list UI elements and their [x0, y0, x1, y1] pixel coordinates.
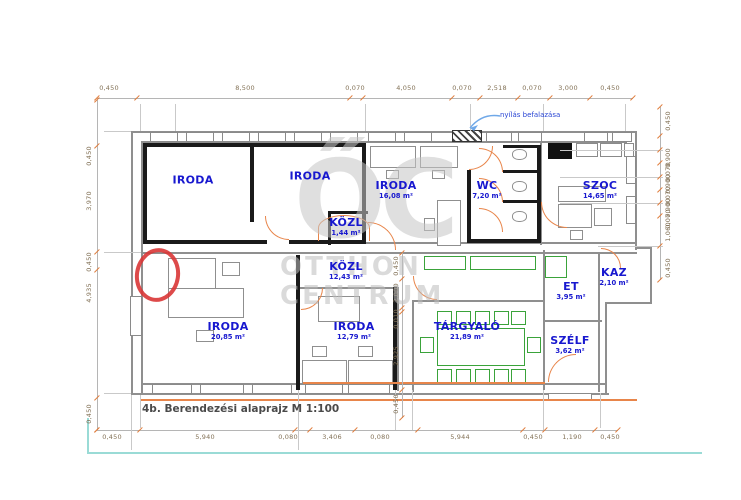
room-area: 16,08 m² [375, 192, 416, 200]
furniture-desk [432, 170, 445, 179]
wall-segment [143, 252, 637, 254]
dimension-text: 3,970 [85, 191, 93, 211]
window-segment [222, 132, 250, 142]
room-label: WC7,20 m² [472, 180, 501, 200]
meeting-chair [511, 311, 526, 325]
dimension-text: 3,000 [558, 84, 578, 92]
window-segment [330, 132, 358, 142]
room-area: 12,43 m² [329, 273, 363, 281]
room-name: IRODA [207, 321, 248, 334]
room-name: IRODA [333, 321, 374, 334]
extension-line [104, 131, 131, 132]
kitchen-unit [548, 143, 572, 159]
wall-segment [467, 170, 471, 242]
toilet-fixture [512, 181, 527, 192]
furniture-desk [437, 200, 461, 246]
door-arc [548, 354, 576, 382]
room-label: KÖZL12,43 m² [329, 261, 363, 281]
door-arc [479, 208, 503, 232]
room-name: KÖZL [329, 217, 363, 230]
window-segment [404, 132, 432, 142]
room-label: IRODA12,79 m² [333, 321, 374, 341]
extension-line [365, 104, 366, 131]
extension-line [600, 393, 601, 428]
wall-segment [296, 255, 300, 390]
toilet-fixture [512, 149, 527, 160]
furniture-desk [594, 208, 612, 226]
dimension-text: 0,450 [600, 433, 620, 441]
door-arc [368, 222, 396, 250]
extension-line [598, 246, 663, 247]
floor-plan-canvas: ŐC OTTHON CENTRUM IRODAIRODAIRODA16,08 m… [0, 0, 741, 500]
extension-line [560, 150, 663, 151]
extension-line [560, 203, 663, 204]
wall-segment [467, 239, 541, 243]
window-segment [200, 384, 244, 394]
room-area: 14,65 m² [583, 192, 618, 200]
window-segment [518, 132, 542, 142]
furniture-green [527, 337, 541, 353]
door-arc [479, 148, 503, 172]
window-segment [584, 132, 608, 142]
dimension-text: 0,080 [370, 433, 390, 441]
furniture-desk [370, 146, 416, 168]
wall-segment [537, 145, 541, 240]
masonry-note-arrow-icon [458, 112, 502, 138]
extension-line [104, 393, 131, 394]
room-area: 1,44 m² [329, 229, 363, 237]
dimension-text: 0,450 [523, 433, 543, 441]
dimension-text: 0,450 [664, 258, 672, 278]
room-name: WC [472, 180, 501, 193]
extension-line [543, 390, 544, 430]
room-label: ET3,95 m² [556, 281, 585, 301]
window-segment [368, 132, 396, 142]
window-segment [294, 132, 322, 142]
watermark-line1: OTTHON [280, 253, 500, 282]
room-label: IRODA [289, 171, 330, 184]
door-arc [541, 202, 567, 228]
furniture-desk [222, 262, 240, 276]
extension-line [140, 395, 141, 428]
wall-segment [328, 211, 368, 214]
furniture-green [420, 337, 434, 353]
dimension-text: 5,944 [450, 433, 470, 441]
room-label: KÖZL1,44 m² [329, 217, 363, 237]
dimension-text: 8,500 [235, 84, 255, 92]
wall-segment [503, 145, 539, 148]
wall-segment [250, 143, 254, 222]
dimension-text: 1,060 [664, 222, 672, 242]
extension-line [175, 104, 176, 131]
furniture-green [545, 256, 567, 278]
dimension-text: 0,070 [452, 84, 472, 92]
furniture-desk [358, 346, 373, 357]
room-label: SZÉLF3,62 m² [550, 335, 589, 355]
room-area: 20,85 m² [207, 333, 248, 341]
extension-line [140, 104, 141, 131]
dimension-text: 0,080 [278, 433, 298, 441]
construction-line [303, 382, 545, 384]
room-name: SZOC [583, 180, 618, 193]
furniture-desk [420, 146, 458, 168]
room-label: IRODA16,08 m² [375, 180, 416, 200]
room-label: TÁRGYALÓ21,89 m² [434, 321, 500, 341]
wall-segment [412, 300, 545, 302]
window-segment [258, 132, 286, 142]
furniture-desk [312, 346, 327, 357]
dimension-line [97, 430, 618, 431]
window-segment [626, 196, 636, 224]
dimension-text: 0,070 [345, 84, 365, 92]
furniture-green [424, 256, 466, 270]
dimension-text: 0,450 [664, 111, 672, 131]
dimension-text: 0,450 [392, 394, 400, 414]
wall-segment [605, 302, 652, 304]
wall-segment [143, 240, 267, 244]
wall-segment [605, 302, 607, 395]
furniture-desk [424, 218, 435, 231]
dimension-text: 0,450 [85, 252, 93, 272]
dimension-text: 0,450 [600, 84, 620, 92]
dimension-line [97, 98, 633, 99]
furniture-desk [348, 360, 393, 384]
room-label: IRODA20,85 m² [207, 321, 248, 341]
window-segment [152, 384, 192, 394]
wall-segment [503, 200, 539, 203]
window-segment [186, 132, 214, 142]
dimension-text: 1,190 [562, 433, 582, 441]
extension-line [625, 104, 626, 131]
room-area: 2,10 m² [599, 279, 628, 287]
door-arc [413, 276, 437, 300]
dimension-text: 0,450 [99, 84, 119, 92]
room-label: IRODA [172, 175, 213, 188]
wall-segment [635, 131, 637, 250]
door-arc [265, 216, 289, 240]
meeting-chair [475, 369, 490, 383]
room-area: 7,20 m² [472, 192, 501, 200]
dimension-tick [657, 277, 663, 283]
dimension-text: 0,010 [392, 309, 400, 329]
room-label: SZOC14,65 m² [583, 180, 618, 200]
masonry-note-label: nyílás befalazása [500, 111, 560, 119]
dimension-text: 0,450 [392, 256, 400, 276]
room-area: 3,62 m² [550, 347, 589, 355]
room-name: SZÉLF [550, 335, 589, 348]
construction-line [140, 399, 637, 401]
extension-line [104, 252, 141, 253]
room-area: 21,89 m² [434, 333, 500, 341]
dimension-text: 0,450 [85, 146, 93, 166]
wall-segment [503, 170, 539, 173]
room-area: 3,95 m² [556, 293, 585, 301]
meeting-chair [511, 369, 526, 383]
room-label: KAZ2,10 m² [599, 267, 628, 287]
dimension-line [97, 100, 98, 430]
window-segment [252, 384, 292, 394]
dimension-text: 2,518 [487, 84, 507, 92]
dimension-text: 0,070 [522, 84, 542, 92]
extension-line [412, 390, 413, 430]
meeting-chair [456, 369, 471, 383]
meeting-chair [494, 369, 509, 383]
dimension-text: 2,000 [392, 283, 400, 303]
window-segment [626, 156, 636, 184]
extension-line [131, 395, 132, 450]
furniture-desk [302, 360, 347, 384]
room-name: IRODA [289, 171, 330, 184]
wall-segment [143, 143, 147, 244]
toilet-fixture [512, 211, 527, 222]
room-name: TÁRGYALÓ [434, 321, 500, 334]
room-name: IRODA [172, 175, 213, 188]
plan-title: 4b. Berendezési alaprajz M 1:100 [142, 403, 339, 415]
wall-segment [143, 143, 365, 147]
room-area: 12,79 m² [333, 333, 374, 341]
window-segment [612, 132, 632, 142]
room-name: ET [556, 281, 585, 294]
dimension-text: 0,450 [102, 433, 122, 441]
dimension-text: 4,935 [85, 283, 93, 303]
dimension-text: 2,925 [392, 346, 400, 366]
wall-segment [650, 247, 652, 304]
extension-line [298, 390, 299, 450]
dimension-text: 4,050 [396, 84, 416, 92]
guide-line [88, 452, 702, 454]
window-segment [130, 296, 142, 336]
furniture-desk [168, 288, 244, 318]
window-segment [150, 132, 178, 142]
furniture-desk [318, 296, 360, 322]
window-segment [348, 384, 390, 394]
dimension-text: 3,406 [322, 433, 342, 441]
wall-segment [543, 320, 602, 322]
room-name: IRODA [375, 180, 416, 193]
dimension-text: 0,450 [85, 404, 93, 424]
dimension-tick [630, 95, 636, 101]
dimension-text: 5,940 [195, 433, 215, 441]
furniture-green [470, 256, 536, 270]
wall-segment [412, 300, 414, 392]
furniture-desk [570, 230, 583, 240]
furniture-desk [386, 170, 399, 179]
window-segment [305, 384, 343, 394]
room-name: KAZ [599, 267, 628, 280]
room-name: KÖZL [329, 261, 363, 274]
dimension-tick [399, 415, 405, 421]
meeting-chair [437, 369, 452, 383]
wall-segment [131, 131, 133, 395]
